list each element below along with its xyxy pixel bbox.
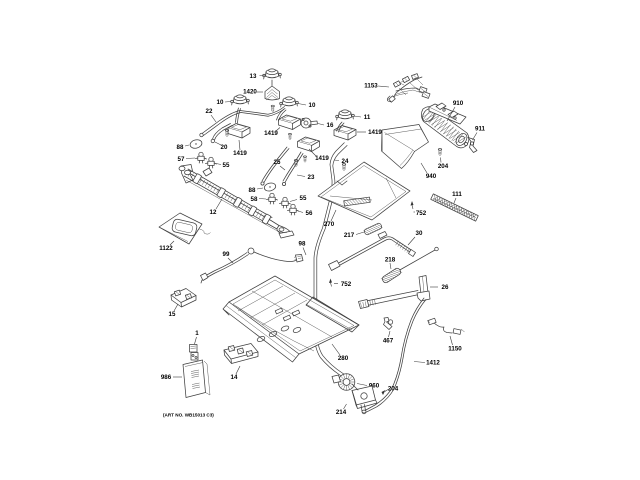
svg-text:111: 111 (452, 191, 462, 198)
svg-text:280: 280 (338, 355, 349, 362)
svg-text:98: 98 (299, 241, 306, 248)
svg-text:1419: 1419 (315, 155, 329, 162)
svg-text:1412: 1412 (426, 360, 440, 367)
svg-text:218: 218 (385, 257, 396, 264)
svg-text:25: 25 (274, 159, 281, 166)
svg-text:1419: 1419 (233, 150, 247, 157)
svg-text:1150: 1150 (448, 346, 462, 353)
svg-text:270: 270 (324, 221, 335, 228)
svg-text:13: 13 (250, 73, 257, 80)
svg-text:22: 22 (206, 108, 213, 115)
svg-text:1420: 1420 (243, 89, 257, 96)
svg-text:30: 30 (416, 230, 423, 237)
svg-text:752: 752 (416, 210, 427, 217)
svg-text:24: 24 (342, 158, 349, 165)
svg-text:10: 10 (217, 99, 224, 106)
svg-text:26: 26 (442, 284, 449, 291)
svg-text:940: 940 (426, 173, 437, 180)
svg-text:16: 16 (327, 122, 334, 129)
svg-text:1: 1 (195, 330, 199, 337)
svg-text:99: 99 (223, 251, 230, 258)
svg-text:204: 204 (438, 163, 449, 170)
svg-text:1122: 1122 (159, 245, 173, 252)
svg-text:55: 55 (300, 195, 307, 202)
svg-text:56: 56 (306, 210, 313, 217)
svg-text:88: 88 (249, 187, 256, 194)
svg-text:14: 14 (231, 374, 238, 381)
svg-text:204: 204 (388, 386, 399, 393)
svg-text:910: 910 (453, 100, 464, 107)
svg-text:57: 57 (178, 156, 185, 163)
svg-text:12: 12 (210, 209, 217, 216)
svg-text:986: 986 (161, 374, 172, 381)
svg-text:752: 752 (341, 281, 352, 288)
svg-text:10: 10 (309, 102, 316, 109)
svg-text:58: 58 (251, 196, 258, 203)
svg-text:217: 217 (344, 232, 355, 239)
svg-text:911: 911 (475, 126, 486, 133)
svg-text:15: 15 (169, 311, 176, 318)
svg-text:11: 11 (364, 114, 371, 121)
svg-text:214: 214 (336, 409, 347, 416)
svg-text:55: 55 (223, 162, 230, 169)
svg-text:88: 88 (177, 144, 184, 151)
svg-text:23: 23 (308, 174, 315, 181)
svg-text:1153: 1153 (364, 83, 378, 90)
svg-text:467: 467 (383, 338, 394, 345)
svg-text:20: 20 (221, 144, 228, 151)
svg-text:(ART NO. WB15013 C3): (ART NO. WB15013 C3) (163, 413, 214, 418)
svg-text:1419: 1419 (368, 129, 382, 136)
